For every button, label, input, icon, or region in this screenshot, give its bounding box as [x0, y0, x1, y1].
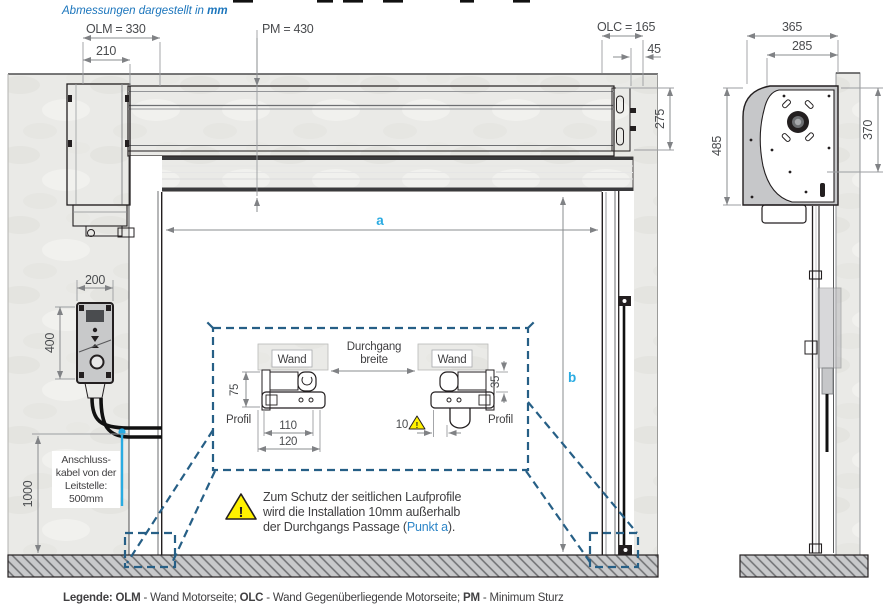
cable-note-line3: Leitstelle: [65, 480, 107, 492]
wand-label-right: Wand [438, 354, 467, 366]
units-note: Abmessungen dargestellt in mm [61, 5, 228, 17]
dim-75: 75 [229, 384, 241, 396]
legend-key-olc: OLC [240, 592, 264, 604]
cable-note: Anschluss- kabel von der Leitstelle: 500… [52, 451, 120, 508]
dim-400: 400 [43, 333, 57, 353]
dim-285: 285 [792, 39, 812, 53]
dim-200: 200 [85, 273, 105, 287]
side-view: 365 285 485 370 [710, 20, 883, 577]
cable-note-line4: 500mm [69, 493, 103, 505]
left-guide-rail [129, 156, 163, 555]
floor [8, 555, 658, 577]
warning-line2: wird die Installation 10mm außerhalb [262, 505, 460, 519]
dim-b: b [568, 370, 576, 385]
cable-note-line1: Anschluss- [61, 454, 111, 466]
legend: Legende: OLM - Wand Motorseite; OLC - Wa… [63, 592, 564, 604]
dim-a: a [376, 213, 384, 228]
drawing-canvas: Abmessungen dargestellt in mm [0, 0, 896, 611]
side-housing [743, 86, 838, 223]
control-button [91, 356, 104, 369]
units-note-unit: mm [207, 5, 227, 17]
dim-370: 370 [861, 120, 875, 140]
warning-line3-pre: der Durchgangs Passage ( [263, 520, 408, 534]
dim-120: 120 [279, 436, 297, 448]
warning-line1: Zum Schutz der seitlichen Laufprofile [263, 490, 462, 504]
legend-label: Legende: [63, 592, 116, 604]
warning-line3: der Durchgangs Passage (Punkt a). [263, 520, 455, 534]
dim-45: 45 [647, 42, 661, 56]
side-motor [762, 205, 806, 223]
dim-1000: 1000 [21, 480, 35, 507]
cropped-title-fragment [233, 0, 530, 3]
control-display [86, 310, 104, 322]
profil-label-right: Profil [488, 414, 513, 426]
warning-line3-post: ). [448, 520, 455, 534]
dim-275: 275 [653, 109, 667, 129]
legend-key-olm: OLM [116, 592, 141, 604]
units-note-text: Abmessungen dargestellt in [61, 5, 207, 17]
dim-pm: PM = 430 [262, 22, 314, 36]
durchgang-label-1: Durchgang [347, 341, 401, 353]
punkt-a-reference: Punkt a [407, 520, 448, 534]
roller-door-dimension-drawing: Abmessungen dargestellt in mm [0, 0, 896, 611]
svg-text:!: ! [416, 421, 419, 430]
dim-35: 35 [490, 376, 502, 388]
dim-olm: OLM = 330 [86, 22, 146, 36]
dim-olc: OLC = 165 [597, 20, 655, 34]
right-guide-rail [602, 191, 634, 555]
legend-val-pm: - Minimum Sturz [480, 592, 564, 604]
legend-key-pm: PM [463, 592, 480, 604]
cable-note-line2: kabel von der [56, 467, 117, 479]
legend-val-olm: - Wand Motorseite; [140, 592, 239, 604]
wand-label-left: Wand [278, 354, 307, 366]
dim-485: 485 [710, 136, 724, 156]
photocell [818, 288, 841, 368]
side-floor [740, 555, 868, 577]
photocell-knob [805, 341, 817, 354]
dim-210: 210 [96, 44, 116, 58]
durchgang-label-2: breite [360, 354, 388, 366]
dim-365: 365 [782, 20, 802, 34]
dim-10: 10 [396, 419, 408, 431]
svg-text:!: ! [239, 504, 244, 521]
profil-label-left: Profil [226, 414, 251, 426]
legend-val-olc: - Wand Gegenüberliegende Motorseite; [263, 592, 463, 604]
dim-110: 110 [279, 420, 296, 432]
